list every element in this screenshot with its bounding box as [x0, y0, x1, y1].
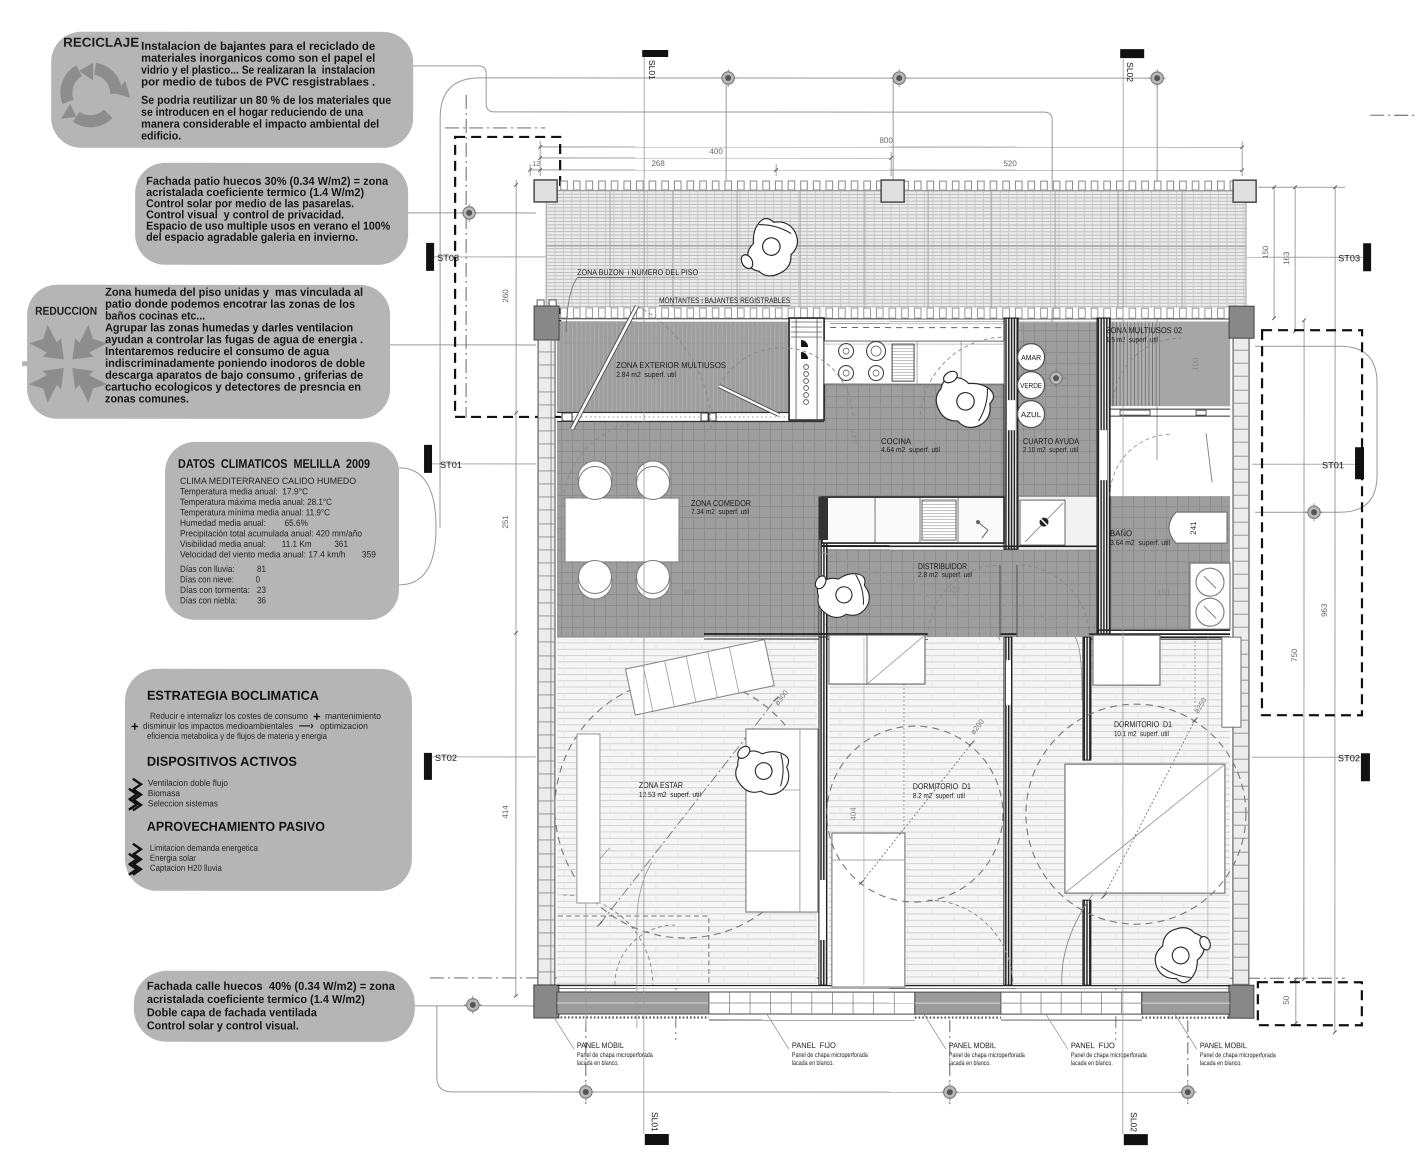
- svg-text:SL02: SL02: [1125, 62, 1135, 82]
- svg-text:Días con tormenta: 23: Días con tormenta: 23: [180, 585, 266, 595]
- svg-text:patio donde podemos encotrar l: patio donde podemos encotrar las zonas d…: [105, 299, 355, 311]
- svg-text:Ventilacion doble flujo: Ventilacion doble flujo: [148, 778, 228, 788]
- svg-text:PANEL FIJO: PANEL FIJO: [792, 1041, 836, 1050]
- svg-text:REDUCCION: REDUCCION: [35, 306, 97, 318]
- svg-text:400: 400: [709, 147, 723, 156]
- svg-text:PANEL MOBIL: PANEL MOBIL: [577, 1041, 624, 1050]
- svg-text:ayudan a controlar las fugas d: ayudan a controlar las fugas de agua de …: [105, 334, 363, 346]
- svg-text:ZONA ESTAR: ZONA ESTAR: [639, 780, 683, 790]
- svg-text:Biomasa: Biomasa: [148, 788, 180, 798]
- svg-text:mantenimiento: mantenimiento: [325, 711, 381, 721]
- svg-text:zonas comunes.: zonas comunes.: [105, 393, 189, 405]
- svg-text:lacada en blanco.: lacada en blanco.: [792, 1060, 834, 1067]
- svg-text:Velocidad del viento media anu: Velocidad del viento media anual: 17.4 k…: [180, 549, 376, 559]
- svg-text:disminuir los impactos medioam: disminuir los impactos medioambientales: [143, 721, 294, 731]
- svg-text:ST03: ST03: [1338, 253, 1360, 263]
- svg-text:12.53 m2 superf. util: 12.53 m2 superf. util: [639, 790, 701, 799]
- svg-text:151: 151: [1157, 588, 1171, 597]
- svg-text:DISPOSITIVOS ACTIVOS: DISPOSITIVOS ACTIVOS: [147, 754, 297, 769]
- svg-text:ST01: ST01: [1322, 460, 1344, 470]
- svg-text:Intentaremos reducire el consu: Intentaremos reducire el consumo de agua: [105, 346, 330, 358]
- svg-text:ST02: ST02: [1338, 753, 1360, 763]
- svg-text:ZONA MULTIUSOS 02: ZONA MULTIUSOS 02: [1106, 325, 1182, 335]
- svg-text:ST02: ST02: [435, 753, 457, 763]
- svg-text:cartucho ecologicos y detector: cartucho ecologicos y detectores de pres…: [105, 382, 361, 394]
- svg-text:eficiencia metabolica y de flu: eficiencia metabolica y de flujos de mat…: [147, 731, 327, 741]
- svg-text:acristalada coeficiente termic: acristalada coeficiente termico (1.4 W/m…: [147, 994, 365, 1006]
- svg-text:descarga aparatos de bajo cons: descarga aparatos de bajo consumo , grif…: [105, 370, 363, 382]
- svg-text:ESTRATEGIA BOCLIMATICA: ESTRATEGIA BOCLIMATICA: [147, 688, 320, 703]
- svg-text:edificio.: edificio.: [141, 131, 181, 143]
- svg-text:247: 247: [850, 430, 859, 444]
- svg-text:PANEL FIJO: PANEL FIJO: [1071, 1041, 1115, 1050]
- svg-text:1.5 m2 superf. util: 1.5 m2 superf. util: [1106, 335, 1158, 344]
- svg-text:Visibilidad media anual:: Visibilidad media anual: 11.1 Km 361: [180, 539, 348, 549]
- svg-text:150: 150: [1261, 245, 1270, 259]
- svg-text:100: 100: [1191, 357, 1200, 371]
- svg-text:manera considerable el impacto: manera considerable el impacto ambiental…: [141, 119, 379, 131]
- svg-text:Captacion H20 lluvia: Captacion H20 lluvia: [150, 863, 222, 873]
- svg-text:2.10 m2 superf. util: 2.10 m2 superf. util: [1023, 445, 1078, 454]
- svg-text:CLIMA MEDITERRANEO CALIDO HUME: CLIMA MEDITERRANEO CALIDO HUMEDO: [180, 476, 356, 486]
- svg-text:Días con nieve: 0: Días con nieve: 0: [180, 574, 260, 584]
- svg-text:Días con lluvia: 81: Días con lluvia: 81: [180, 564, 266, 574]
- svg-text:+: +: [131, 719, 139, 734]
- svg-text:7.34 m2 superf. util: 7.34 m2 superf. util: [691, 507, 749, 516]
- svg-text:Zona humeda del piso unidas y: Zona humeda del piso unidas y mas vincul…: [105, 287, 363, 299]
- svg-text:BAÑO: BAÑO: [1110, 528, 1132, 538]
- svg-text:ZONA EXTERIOR MULTIUSOS: ZONA EXTERIOR MULTIUSOS: [616, 360, 726, 370]
- svg-text:APROVECHAMIENTO PASIVO: APROVECHAMIENTO PASIVO: [147, 819, 325, 834]
- svg-text:MONTANTES i BAJANTES REGISTRAB: MONTANTES i BAJANTES REGISTRABLES: [659, 296, 790, 305]
- svg-text:404: 404: [849, 807, 858, 821]
- svg-text:8.2 m2 superf. util: 8.2 m2 superf. util: [913, 791, 965, 800]
- svg-text:241: 241: [1189, 521, 1198, 535]
- svg-text:Seleccion sistemas: Seleccion sistemas: [148, 798, 219, 808]
- svg-text:baños cocinas etc...: baños cocinas etc...: [105, 310, 205, 322]
- svg-text:268: 268: [651, 159, 665, 168]
- svg-text:4.64 m2 superf. util: 4.64 m2 superf. util: [881, 445, 940, 454]
- svg-text:Panel de chapa microperforada: Panel de chapa microperforada: [1071, 1052, 1147, 1059]
- svg-text:lacada en blanco.: lacada en blanco.: [1071, 1060, 1113, 1067]
- svg-text:indiscriminadamente poniendo i: indiscriminadamente poniendo inodoros de…: [105, 358, 365, 370]
- svg-text:Días con niebla: 36: Días con niebla: 36: [180, 595, 266, 605]
- svg-text:materiales inorganicos como so: materiales inorganicos como son el papel…: [141, 53, 375, 65]
- svg-text:SL01: SL01: [647, 60, 657, 80]
- svg-text:Temperatura media anual: 17.9: Temperatura media anual: 17.9°C: [180, 486, 308, 496]
- svg-text:se introducen en el hogar redu: se introducen en el hogar reduciendo de …: [141, 107, 364, 119]
- svg-text:lacada en blanco.: lacada en blanco.: [949, 1060, 991, 1067]
- svg-text:750: 750: [1290, 648, 1299, 662]
- svg-text:SL01: SL01: [650, 1112, 660, 1132]
- svg-text:3.64 m2 superf. util: 3.64 m2 superf. util: [1110, 538, 1170, 547]
- svg-text:Precipitación total acumulada: Precipitación total acumulada anual: 420…: [180, 528, 362, 538]
- svg-text:optimizacion: optimizacion: [320, 721, 368, 731]
- svg-text:50: 50: [1282, 995, 1291, 1004]
- svg-text:lacada en blanco.: lacada en blanco.: [1200, 1060, 1242, 1067]
- svg-text:Control solar y control visual: Control solar y control visual.: [147, 1020, 299, 1032]
- svg-text:del espacio agradable galeria: del espacio agradable galeria en inviern…: [146, 232, 358, 244]
- svg-text:Panel de chapa microperforada: Panel de chapa microperforada: [949, 1052, 1025, 1059]
- svg-text:Panel de chapa microperforada: Panel de chapa microperforada: [1200, 1052, 1276, 1059]
- svg-text:2.84 m2 superf. util: 2.84 m2 superf. util: [616, 370, 676, 379]
- svg-text:AMAR: AMAR: [1021, 353, 1042, 362]
- svg-text:414: 414: [501, 805, 510, 819]
- svg-text:Doble capa de fachada ventilad: Doble capa de fachada ventilada: [147, 1007, 318, 1019]
- svg-text:520: 520: [1003, 159, 1017, 168]
- svg-text:SL02: SL02: [1129, 1112, 1139, 1132]
- svg-text:163: 163: [1282, 251, 1291, 265]
- svg-text:302: 302: [683, 588, 697, 597]
- svg-text:VERDE: VERDE: [1020, 381, 1042, 390]
- svg-text:Limitacion demanda energetica: Limitacion demanda energetica: [150, 843, 258, 853]
- svg-text:RECICLAJE: RECICLAJE: [63, 35, 139, 50]
- svg-text:AZUL: AZUL: [1021, 410, 1041, 419]
- svg-text:PANEL MOBIL: PANEL MOBIL: [949, 1041, 996, 1050]
- svg-text:Se podria reutilizar un 80 % d: Se podria reutilizar un 80 % de los mate…: [141, 95, 391, 107]
- svg-text:2.8 m2 superf. util: 2.8 m2 superf. util: [918, 570, 972, 579]
- svg-text:lacada en blanco.: lacada en blanco.: [577, 1060, 619, 1067]
- svg-text:PANEL MOBIL: PANEL MOBIL: [1200, 1041, 1247, 1050]
- svg-text:DATOS CLIMATICOS MELILLA 20: DATOS CLIMATICOS MELILLA 2009: [178, 457, 370, 471]
- svg-text:260: 260: [501, 289, 510, 303]
- svg-text:963: 963: [1320, 603, 1329, 617]
- svg-text:Energia solar: Energia solar: [150, 853, 196, 863]
- svg-text:Instalacion de bajantes para e: Instalacion de bajantes para el reciclad…: [141, 41, 375, 53]
- svg-text:Reducir e internalizr los cost: Reducir e internalizr los costes de cons…: [150, 711, 308, 721]
- svg-text:DORMITORIO D1: DORMITORIO D1: [913, 781, 971, 791]
- svg-text:por medio de tubos de PVC resg: por medio de tubos de PVC resgistrablaes…: [141, 77, 375, 89]
- svg-text:251: 251: [501, 515, 510, 529]
- svg-text:ST01: ST01: [440, 460, 462, 470]
- svg-text:10.1 m2 superf. util: 10.1 m2 superf. util: [1114, 729, 1169, 738]
- svg-text:vidrio y el plastico... Se rea: vidrio y el plastico... Se realizaran la…: [141, 65, 375, 77]
- svg-text:Humedad media anual: 65: Humedad media anual: 65.6%: [180, 518, 308, 528]
- svg-text:Agrupar las zonas humedas y da: Agrupar las zonas humedas y darles venti…: [105, 322, 353, 334]
- svg-text:Panel de chapa microperforada: Panel de chapa microperforada: [577, 1052, 653, 1059]
- svg-text:12: 12: [532, 161, 540, 168]
- svg-text:Panel de chapa microperforada: Panel de chapa microperforada: [792, 1052, 868, 1059]
- svg-text:ZONA BUZON i NUMERO DEL PISO: ZONA BUZON i NUMERO DEL PISO: [577, 268, 698, 277]
- svg-text:Temperatura mínima media anual: Temperatura mínima media anual: 11.9°C: [180, 507, 330, 517]
- svg-text:Fachada calle huecos 40% (0.3: Fachada calle huecos 40% (0.34 W/m2) = z…: [147, 981, 396, 993]
- svg-text:800: 800: [879, 136, 893, 145]
- svg-text:Temperatura máxima media anual: Temperatura máxima media anual: 28.1°C: [180, 497, 332, 507]
